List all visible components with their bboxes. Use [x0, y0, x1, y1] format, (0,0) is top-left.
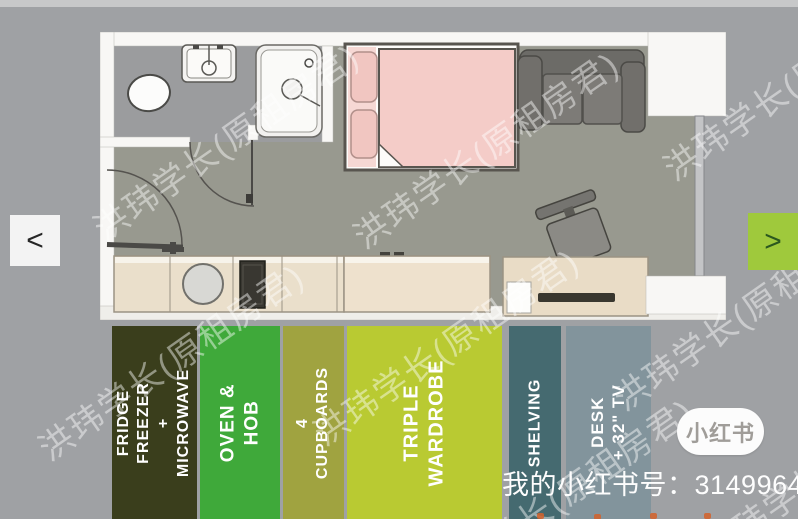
tv-icon — [538, 293, 615, 302]
top-edge-strip — [0, 0, 798, 7]
banner-cupboards: 4 CUPBOARDS — [283, 326, 344, 519]
banner-label: SHELVING — [525, 378, 545, 467]
chevron-right-icon: > — [764, 227, 782, 257]
banner-oven-hob: OVEN & HOB — [200, 326, 280, 519]
banner-label: 4 CUPBOARDS — [294, 366, 334, 478]
sofa-icon — [518, 50, 645, 132]
xiaohongshu-badge: 小红书 — [677, 408, 764, 455]
wall-block-bottom-right — [646, 276, 726, 314]
next-arrow-button[interactable]: > — [748, 213, 798, 270]
banner-triple-wardrobe: TRIPLE WARDROBE — [347, 326, 502, 519]
double-bed-icon — [345, 44, 518, 170]
carousel-image-viewer: FRIDGE FREEZER + MICROWAVE OVEN & HOB 4 … — [0, 0, 798, 519]
window-sill-top-right — [648, 32, 726, 116]
banner-label: FRIDGE FREEZER + MICROWAVE — [115, 368, 195, 476]
banner-label: TRIPLE WARDROBE — [399, 359, 449, 486]
wardrobe-icon — [344, 252, 490, 312]
badge-label: 小红书 — [686, 416, 755, 448]
window — [695, 116, 704, 276]
banner-label: DESK + 32" TV — [587, 384, 630, 460]
prev-arrow-button[interactable]: < — [10, 215, 60, 266]
chevron-left-icon: < — [26, 226, 44, 256]
desk-icon — [503, 257, 648, 316]
account-id-text: 我的小红书号：314996465 — [502, 463, 798, 502]
paper-icon — [507, 282, 531, 313]
floorplan — [100, 32, 726, 320]
shower-icon — [256, 45, 322, 137]
banner-label: OVEN & HOB — [216, 383, 264, 463]
wash-basin-icon — [182, 45, 236, 82]
hob-icon — [240, 261, 265, 308]
counter-sink-icon — [183, 264, 223, 304]
banner-fridge-freezer-microwave: FRIDGE FREEZER + MICROWAVE — [112, 326, 197, 519]
